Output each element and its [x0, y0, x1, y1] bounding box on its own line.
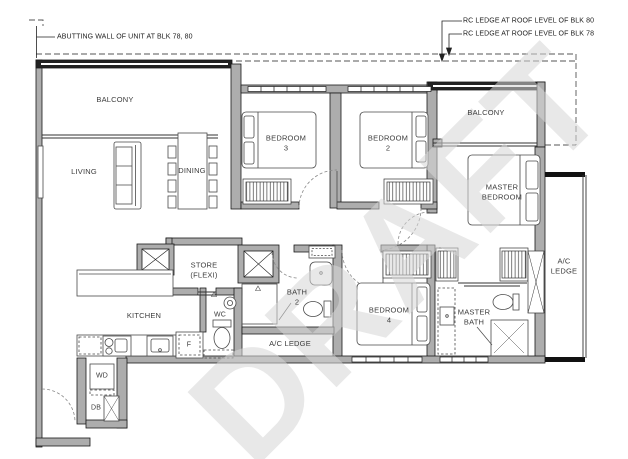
master-shower	[491, 320, 528, 356]
room-label-living: LIVING	[71, 167, 97, 177]
room-label-bedroom4: BEDROOM 4	[369, 305, 409, 325]
tall-cabinet	[528, 251, 544, 313]
door-leaves	[337, 171, 383, 288]
floor-plan: DRAFT ABUTTING WALL OF UNIT AT BLK 78, 8…	[0, 0, 628, 459]
annotation-rc-ledge-blk78: RC LEDGE AT ROOF LEVEL OF BLK 78	[463, 31, 594, 38]
kitchen-sink	[147, 336, 173, 356]
wc-fixtures	[204, 292, 236, 358]
room-label-bedroom3: BEDROOM 3	[266, 133, 306, 153]
room-label-balcony-right: BALCONY	[467, 108, 504, 118]
room-label-ac-ledge-mid: A/C LEDGE	[269, 339, 311, 349]
label-fridge: F	[187, 340, 191, 349]
room-label-kitchen: KITCHEN	[127, 311, 161, 321]
kitchen-counter	[77, 335, 176, 356]
hob	[103, 336, 131, 356]
room-label-dining: DINING	[178, 166, 205, 176]
master-bath-leader	[477, 327, 492, 345]
room-label-master-bedroom: MASTER BEDROOM	[482, 182, 522, 202]
tv-console	[38, 146, 43, 198]
label-washer-dryer: WD	[96, 371, 108, 380]
shaft-bath	[238, 245, 279, 283]
floor-plan-drawing	[0, 0, 628, 459]
sofa	[114, 142, 141, 209]
annotation-rc-ledge-blk80: RC LEDGE AT ROOF LEVEL OF BLK 80	[463, 18, 594, 25]
label-distribution-board: DB	[91, 403, 101, 412]
bath2-toilet	[304, 301, 332, 317]
wc-toilet	[213, 320, 231, 349]
master-toilet	[493, 294, 519, 310]
db-box	[104, 396, 119, 421]
bath2-shower	[242, 284, 277, 324]
kitchen-island	[77, 270, 173, 296]
room-label-bedroom2: BEDROOM 2	[368, 133, 408, 153]
room-label-wc: WC	[214, 310, 226, 319]
room-label-bath2: BATH 2	[287, 287, 307, 307]
room-label-store: STORE (FLEXI)	[190, 260, 217, 280]
room-label-balcony-left: BALCONY	[96, 95, 133, 105]
leader-lines	[37, 21, 463, 61]
annotation-abutting-wall: ABUTTING WALL OF UNIT AT BLK 78, 80	[57, 34, 193, 41]
room-label-master-bath: MASTER BATH	[458, 307, 490, 327]
bath2-vanity	[309, 246, 335, 258]
room-label-ac-ledge-right: A/C LEDGE	[551, 256, 577, 276]
